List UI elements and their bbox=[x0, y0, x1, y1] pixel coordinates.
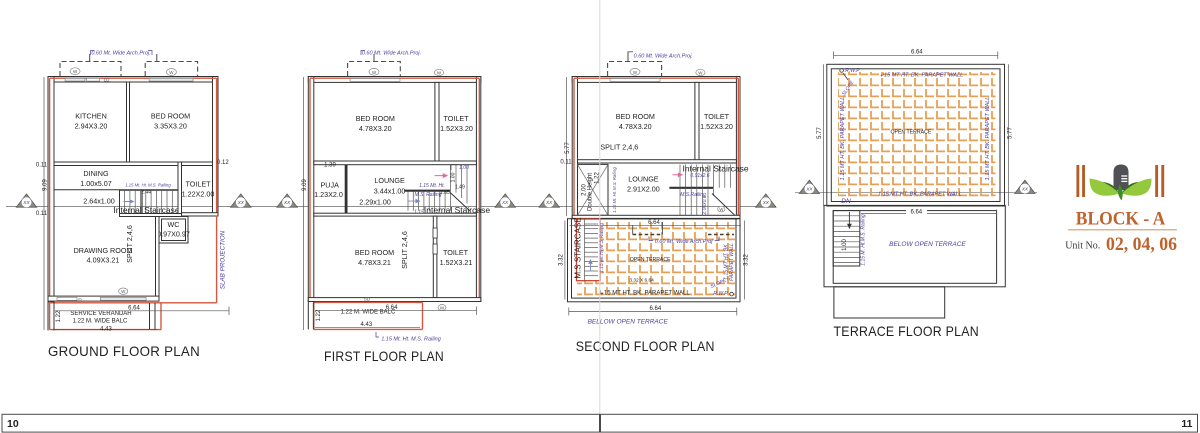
svg-text:W: W bbox=[121, 289, 126, 294]
svg-text:4.43: 4.43 bbox=[100, 326, 112, 332]
svg-text:2.29x1.00: 2.29x1.00 bbox=[359, 197, 391, 206]
svg-text:↳15 MT HT. BK. PARAPET WALL: ↳15 MT HT. BK. PARAPET WALL bbox=[599, 290, 690, 297]
svg-text:1.15 Mt. Ht. M.S. Railing: 1.15 Mt. Ht. M.S. Railing bbox=[125, 182, 171, 187]
svg-text:0.11: 0.11 bbox=[36, 163, 48, 169]
svg-text:2.06x0.6: 2.06x0.6 bbox=[702, 195, 708, 215]
svg-text:1.52X3.21: 1.52X3.21 bbox=[440, 258, 473, 267]
svg-text:0.60 Mt. Wide Arch.Proj: 0.60 Mt. Wide Arch.Proj bbox=[655, 239, 714, 245]
svg-text:3.32: 3.32 bbox=[559, 254, 565, 266]
svg-text:6.64: 6.64 bbox=[128, 305, 140, 311]
svg-text:1.15 Mt. Ht. M.S. Railing: 1.15 Mt. Ht. M.S. Railing bbox=[612, 167, 617, 213]
svg-text:1.22: 1.22 bbox=[56, 310, 62, 322]
svg-text:M.S. Railing: M.S. Railing bbox=[415, 192, 442, 198]
svg-text:6.64: 6.64 bbox=[650, 306, 662, 312]
svg-text:1.15 MT HT. BK. PARAPET WALL: 1.15 MT HT. BK. PARAPET WALL bbox=[840, 97, 846, 181]
svg-text:LOUNGE: LOUNGE bbox=[374, 176, 405, 185]
svg-text:5.77: 5.77 bbox=[1008, 127, 1014, 139]
svg-text:DN: DN bbox=[841, 198, 851, 205]
svg-text:3.44x1.00: 3.44x1.00 bbox=[374, 187, 406, 196]
svg-text:GROUND FLOOR PLAN: GROUND FLOOR PLAN bbox=[48, 343, 200, 359]
svg-text:5.77: 5.77 bbox=[565, 142, 571, 154]
svg-text:OPEN TERRACE: OPEN TERRACE bbox=[630, 257, 671, 263]
svg-text:1.23X2.0: 1.23X2.0 bbox=[314, 190, 343, 199]
svg-text:WC: WC bbox=[168, 220, 180, 229]
svg-text:1.52X3.20: 1.52X3.20 bbox=[700, 122, 733, 131]
svg-text:0.97X0.97: 0.97X0.97 bbox=[157, 230, 190, 239]
svg-text:0.11: 0.11 bbox=[560, 160, 572, 166]
svg-text:SERVICE VERANDAH: SERVICE VERANDAH bbox=[70, 311, 131, 317]
svg-text:1.15 M. Ht.M.S. Railing: 1.15 M. Ht.M.S. Railing bbox=[861, 214, 867, 266]
svg-text:OPEN TERRACE: OPEN TERRACE bbox=[890, 129, 931, 135]
svg-text:0.91x2.6: 0.91x2.6 bbox=[690, 173, 709, 179]
svg-text:D2: D2 bbox=[104, 78, 110, 83]
svg-text:W: W bbox=[73, 69, 78, 74]
svg-text:Internal Staircase: Internal Staircase bbox=[683, 163, 749, 173]
svg-text:4.78X3.21: 4.78X3.21 bbox=[358, 258, 391, 267]
svg-text:BED ROOM: BED ROOM bbox=[355, 248, 394, 257]
svg-text:TOILET: TOILET bbox=[704, 112, 730, 121]
svg-text:1.00: 1.00 bbox=[842, 239, 848, 251]
svg-text:SLAB PROJECTION: SLAB PROJECTION bbox=[220, 230, 227, 289]
svg-text:1.49: 1.49 bbox=[455, 184, 465, 190]
svg-text:1.15 MT HT. BK. PARAPET WALL: 1.15 MT HT. BK. PARAPET WALL bbox=[878, 191, 962, 197]
svg-text:XX: XX bbox=[22, 200, 30, 205]
svg-text:SPLIT 2,4,6: SPLIT 2,4,6 bbox=[400, 231, 409, 269]
svg-text:4.78X3.20: 4.78X3.20 bbox=[359, 124, 392, 133]
svg-text:↲15 MT HT. BK. PARAPET WALL: ↲15 MT HT. BK. PARAPET WALL bbox=[879, 72, 963, 79]
svg-text:2.44: 2.44 bbox=[141, 189, 151, 195]
svg-text:R.W.P: R.W.P bbox=[845, 68, 860, 74]
svg-text:1.39: 1.39 bbox=[324, 163, 336, 169]
svg-text:W: W bbox=[719, 207, 723, 212]
svg-text:PARAPET WALL: PARAPET WALL bbox=[729, 243, 735, 281]
svg-text:SECOND FLOOR PLAN: SECOND FLOOR PLAN bbox=[576, 338, 715, 354]
svg-text:Double Height: Double Height bbox=[588, 173, 594, 211]
svg-text:1.00: 1.00 bbox=[451, 172, 457, 182]
svg-text:BED ROOM: BED ROOM bbox=[356, 114, 395, 123]
svg-text:1.15 Mt. Ht. M.S. Railing: 1.15 Mt. Ht. M.S. Railing bbox=[381, 336, 442, 342]
svg-text:6.64: 6.64 bbox=[911, 49, 923, 55]
svg-text:6.64: 6.64 bbox=[648, 220, 660, 226]
svg-text:TERRACE FLOOR PLAN: TERRACE FLOOR PLAN bbox=[834, 323, 980, 339]
svg-text:6.64: 6.64 bbox=[910, 209, 922, 215]
svg-text:9.09: 9.09 bbox=[302, 179, 308, 191]
svg-text:11: 11 bbox=[1181, 418, 1192, 430]
svg-text:Unit No.: Unit No. bbox=[1065, 240, 1100, 252]
svg-text:0.11: 0.11 bbox=[36, 211, 48, 217]
svg-text:1.00x5.07: 1.00x5.07 bbox=[80, 179, 112, 188]
svg-text:4.43: 4.43 bbox=[361, 322, 373, 328]
svg-text:3.32 X 6.64: 3.32 X 6.64 bbox=[629, 278, 654, 284]
svg-text:BED ROOM: BED ROOM bbox=[151, 112, 190, 121]
svg-text:0.60 Mt. Wide Arch.Proj.: 0.60 Mt. Wide Arch.Proj. bbox=[634, 54, 693, 60]
svg-text:PUJA: PUJA bbox=[321, 180, 340, 189]
svg-text:DINING: DINING bbox=[83, 169, 109, 178]
svg-text:1.22X2.00: 1.22X2.00 bbox=[182, 190, 215, 199]
svg-text:BELOW OPEN TERRACE: BELOW OPEN TERRACE bbox=[889, 241, 966, 248]
svg-text:6.64: 6.64 bbox=[386, 305, 398, 311]
svg-text:1.22: 1.22 bbox=[316, 309, 322, 321]
svg-text:R.W.P: R.W.P bbox=[713, 291, 728, 297]
svg-text:1.52X3.20: 1.52X3.20 bbox=[440, 124, 473, 133]
svg-text:0.12: 0.12 bbox=[217, 160, 229, 166]
svg-text:1.00: 1.00 bbox=[459, 165, 469, 171]
svg-text:10: 10 bbox=[7, 418, 19, 430]
svg-text:W: W bbox=[169, 70, 174, 75]
svg-text:TOILET: TOILET bbox=[185, 180, 211, 189]
svg-text:2.94X3.20: 2.94X3.20 bbox=[75, 122, 108, 131]
svg-text:3.32: 3.32 bbox=[744, 254, 750, 266]
svg-text:LOUNGE: LOUNGE bbox=[628, 175, 659, 184]
svg-text:M.S STAIRCASE: M.S STAIRCASE bbox=[574, 217, 583, 278]
svg-text:2.91X2.00: 2.91X2.00 bbox=[627, 185, 660, 194]
svg-text:4.78X3.20: 4.78X3.20 bbox=[619, 122, 652, 131]
svg-text:1.22 M. WIDE BALC: 1.22 M. WIDE BALC bbox=[73, 319, 128, 325]
svg-text:2.64x1.00: 2.64x1.00 bbox=[83, 197, 115, 206]
svg-text:4.09X3.21: 4.09X3.21 bbox=[87, 256, 120, 265]
svg-text:W: W bbox=[698, 71, 703, 76]
svg-text:0.60 Mt. Wide Arch.Proj.: 0.60 Mt. Wide Arch.Proj. bbox=[91, 51, 150, 57]
svg-text:TOILET: TOILET bbox=[443, 248, 469, 257]
svg-text:FIRST FLOOR PLAN: FIRST FLOOR PLAN bbox=[324, 348, 444, 364]
svg-text:BLOCK - A: BLOCK - A bbox=[1076, 209, 1166, 230]
svg-text:02, 04, 06: 02, 04, 06 bbox=[1106, 234, 1177, 255]
svg-text:DRAWING ROOM: DRAWING ROOM bbox=[74, 246, 133, 255]
svg-text:1.15 MT HT. BK. PARAPET WALL: 1.15 MT HT. BK. PARAPET WALL bbox=[985, 97, 991, 181]
svg-text:2.85: 2.85 bbox=[440, 190, 450, 196]
svg-text:5.77: 5.77 bbox=[817, 127, 823, 139]
svg-text:0.60 Mt. Wide Arch.Proj.: 0.60 Mt. Wide Arch.Proj. bbox=[362, 51, 421, 57]
svg-text:BED ROOM: BED ROOM bbox=[616, 112, 655, 121]
svg-text:SPLIT 2,4,6: SPLIT 2,4,6 bbox=[125, 225, 134, 263]
svg-text:KITCHEN: KITCHEN bbox=[75, 112, 107, 121]
svg-text:SD: SD bbox=[364, 297, 371, 302]
svg-text:TOILET: TOILET bbox=[443, 114, 469, 123]
svg-text:1.15 Mt. Ht.: 1.15 Mt. Ht. bbox=[419, 183, 445, 189]
svg-text:3.35X3.20: 3.35X3.20 bbox=[154, 122, 187, 131]
svg-text:SPLIT 2,4,6: SPLIT 2,4,6 bbox=[600, 142, 638, 151]
